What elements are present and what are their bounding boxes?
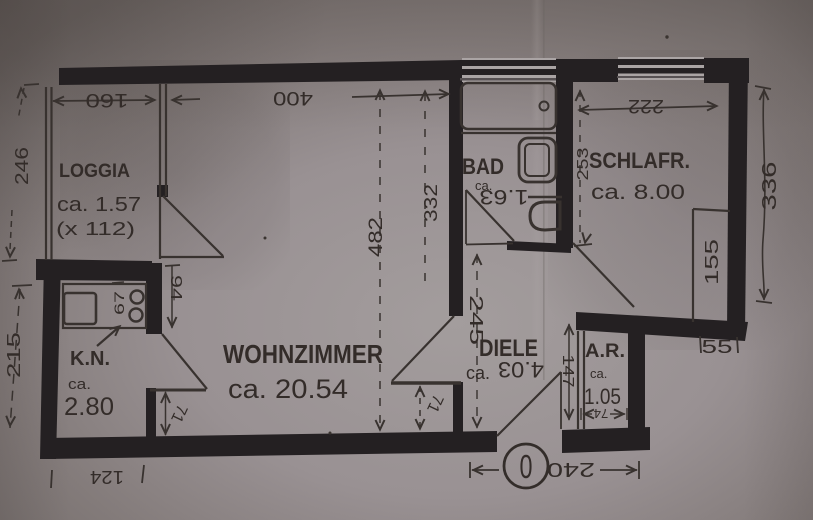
svg-text:SCHLAFR.: SCHLAFR. [589,148,690,173]
svg-text:ca. 20.54: ca. 20.54 [228,374,348,404]
svg-text:1.05: 1.05 [584,384,621,409]
svg-text:215: 215 [4,332,24,378]
svg-text:4.03: 4.03 [498,357,544,382]
svg-text:K.N.: K.N. [70,348,110,370]
svg-text:55: 55 [702,337,733,357]
svg-text:LOGGIA: LOGGIA [59,161,130,182]
svg-text:ca.: ca. [68,376,91,393]
svg-text:124: 124 [90,467,124,487]
svg-text:ca.: ca. [466,363,490,383]
svg-text:400: 400 [273,87,313,108]
svg-text:1.63: 1.63 [480,185,529,208]
svg-text:67: 67 [111,291,127,315]
svg-text:(x 112): (x 112) [56,219,135,239]
svg-text:A.R.: A.R. [585,341,625,362]
svg-text:BAD: BAD [462,154,504,179]
svg-text:2.80: 2.80 [64,393,114,421]
svg-text:WOHNZIMMER: WOHNZIMMER [223,339,383,369]
svg-text:332: 332 [421,184,441,222]
svg-text:147: 147 [559,355,576,388]
svg-text:155: 155 [702,239,722,285]
svg-text:160: 160 [86,89,129,110]
svg-text:336: 336 [759,162,781,211]
svg-text:253: 253 [575,147,592,180]
svg-text:ca.: ca. [590,366,607,381]
svg-text:246: 246 [12,147,32,185]
svg-text:240: 240 [547,458,595,480]
svg-text:245: 245 [466,295,486,345]
svg-text:482: 482 [366,217,387,257]
svg-text:74: 74 [594,406,608,421]
svg-text:0: 0 [520,448,533,485]
svg-text:ca. 8.00: ca. 8.00 [591,181,685,204]
svg-text:ca. 1.57: ca. 1.57 [57,194,141,216]
svg-text:222: 222 [628,95,664,116]
svg-text:94: 94 [167,275,184,301]
